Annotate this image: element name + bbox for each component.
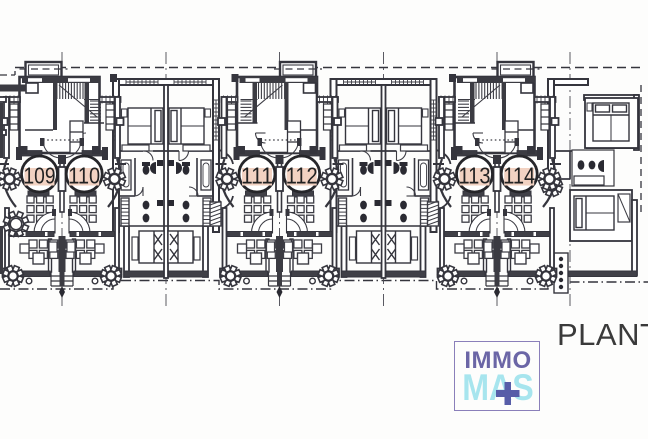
svg-text:110: 110: [68, 163, 100, 189]
svg-text:113: 113: [459, 163, 491, 189]
svg-text:112: 112: [286, 163, 318, 189]
svg-text:109: 109: [24, 163, 56, 189]
svg-text:111: 111: [241, 163, 273, 189]
svg-text:114: 114: [503, 163, 535, 189]
